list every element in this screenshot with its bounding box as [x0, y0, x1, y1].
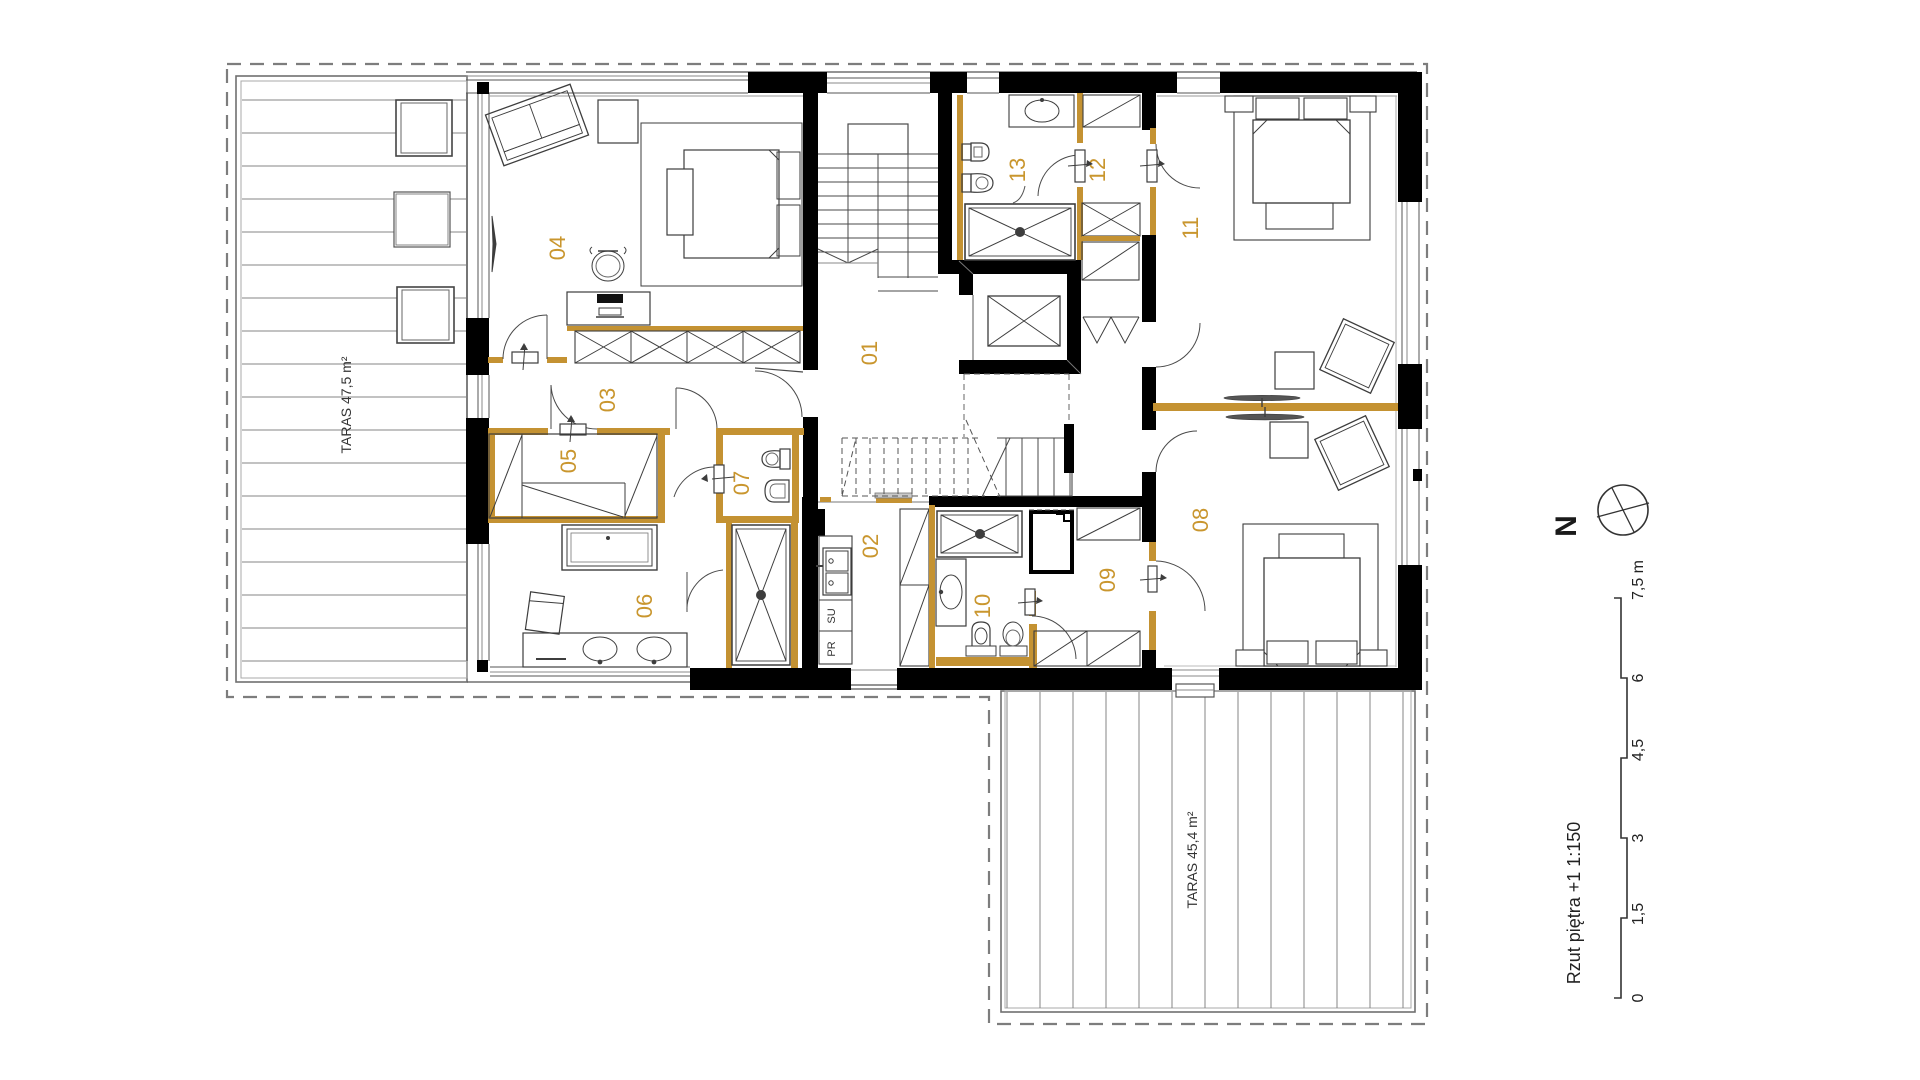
svg-text:09: 09 — [1095, 568, 1120, 592]
svg-text:1,5: 1,5 — [1630, 903, 1647, 925]
svg-text:11: 11 — [1178, 217, 1203, 240]
svg-text:02: 02 — [858, 534, 883, 558]
svg-text:05: 05 — [556, 449, 581, 473]
svg-text:03: 03 — [595, 388, 620, 412]
svg-text:4,5: 4,5 — [1630, 739, 1647, 761]
svg-text:3: 3 — [1630, 833, 1647, 842]
svg-text:10: 10 — [970, 594, 995, 618]
svg-text:SU: SU — [826, 608, 838, 623]
svg-text:7,5 m: 7,5 m — [1630, 560, 1647, 600]
svg-text:PR: PR — [826, 641, 838, 656]
svg-text:08: 08 — [1188, 508, 1213, 532]
svg-text:07: 07 — [729, 471, 754, 495]
svg-text:TARAS 47,5 m²: TARAS 47,5 m² — [338, 356, 354, 453]
svg-text:6: 6 — [1630, 673, 1647, 682]
svg-text:01: 01 — [857, 341, 882, 365]
svg-text:06: 06 — [632, 594, 657, 618]
svg-text:Rzut piętra +1 1:150: Rzut piętra +1 1:150 — [1564, 822, 1584, 985]
svg-text:N: N — [1550, 515, 1583, 537]
svg-text:0: 0 — [1630, 993, 1647, 1002]
svg-text:13: 13 — [1005, 158, 1030, 182]
svg-text:04: 04 — [545, 236, 570, 260]
svg-text:TARAS 45,4 m²: TARAS 45,4 m² — [1184, 811, 1200, 908]
